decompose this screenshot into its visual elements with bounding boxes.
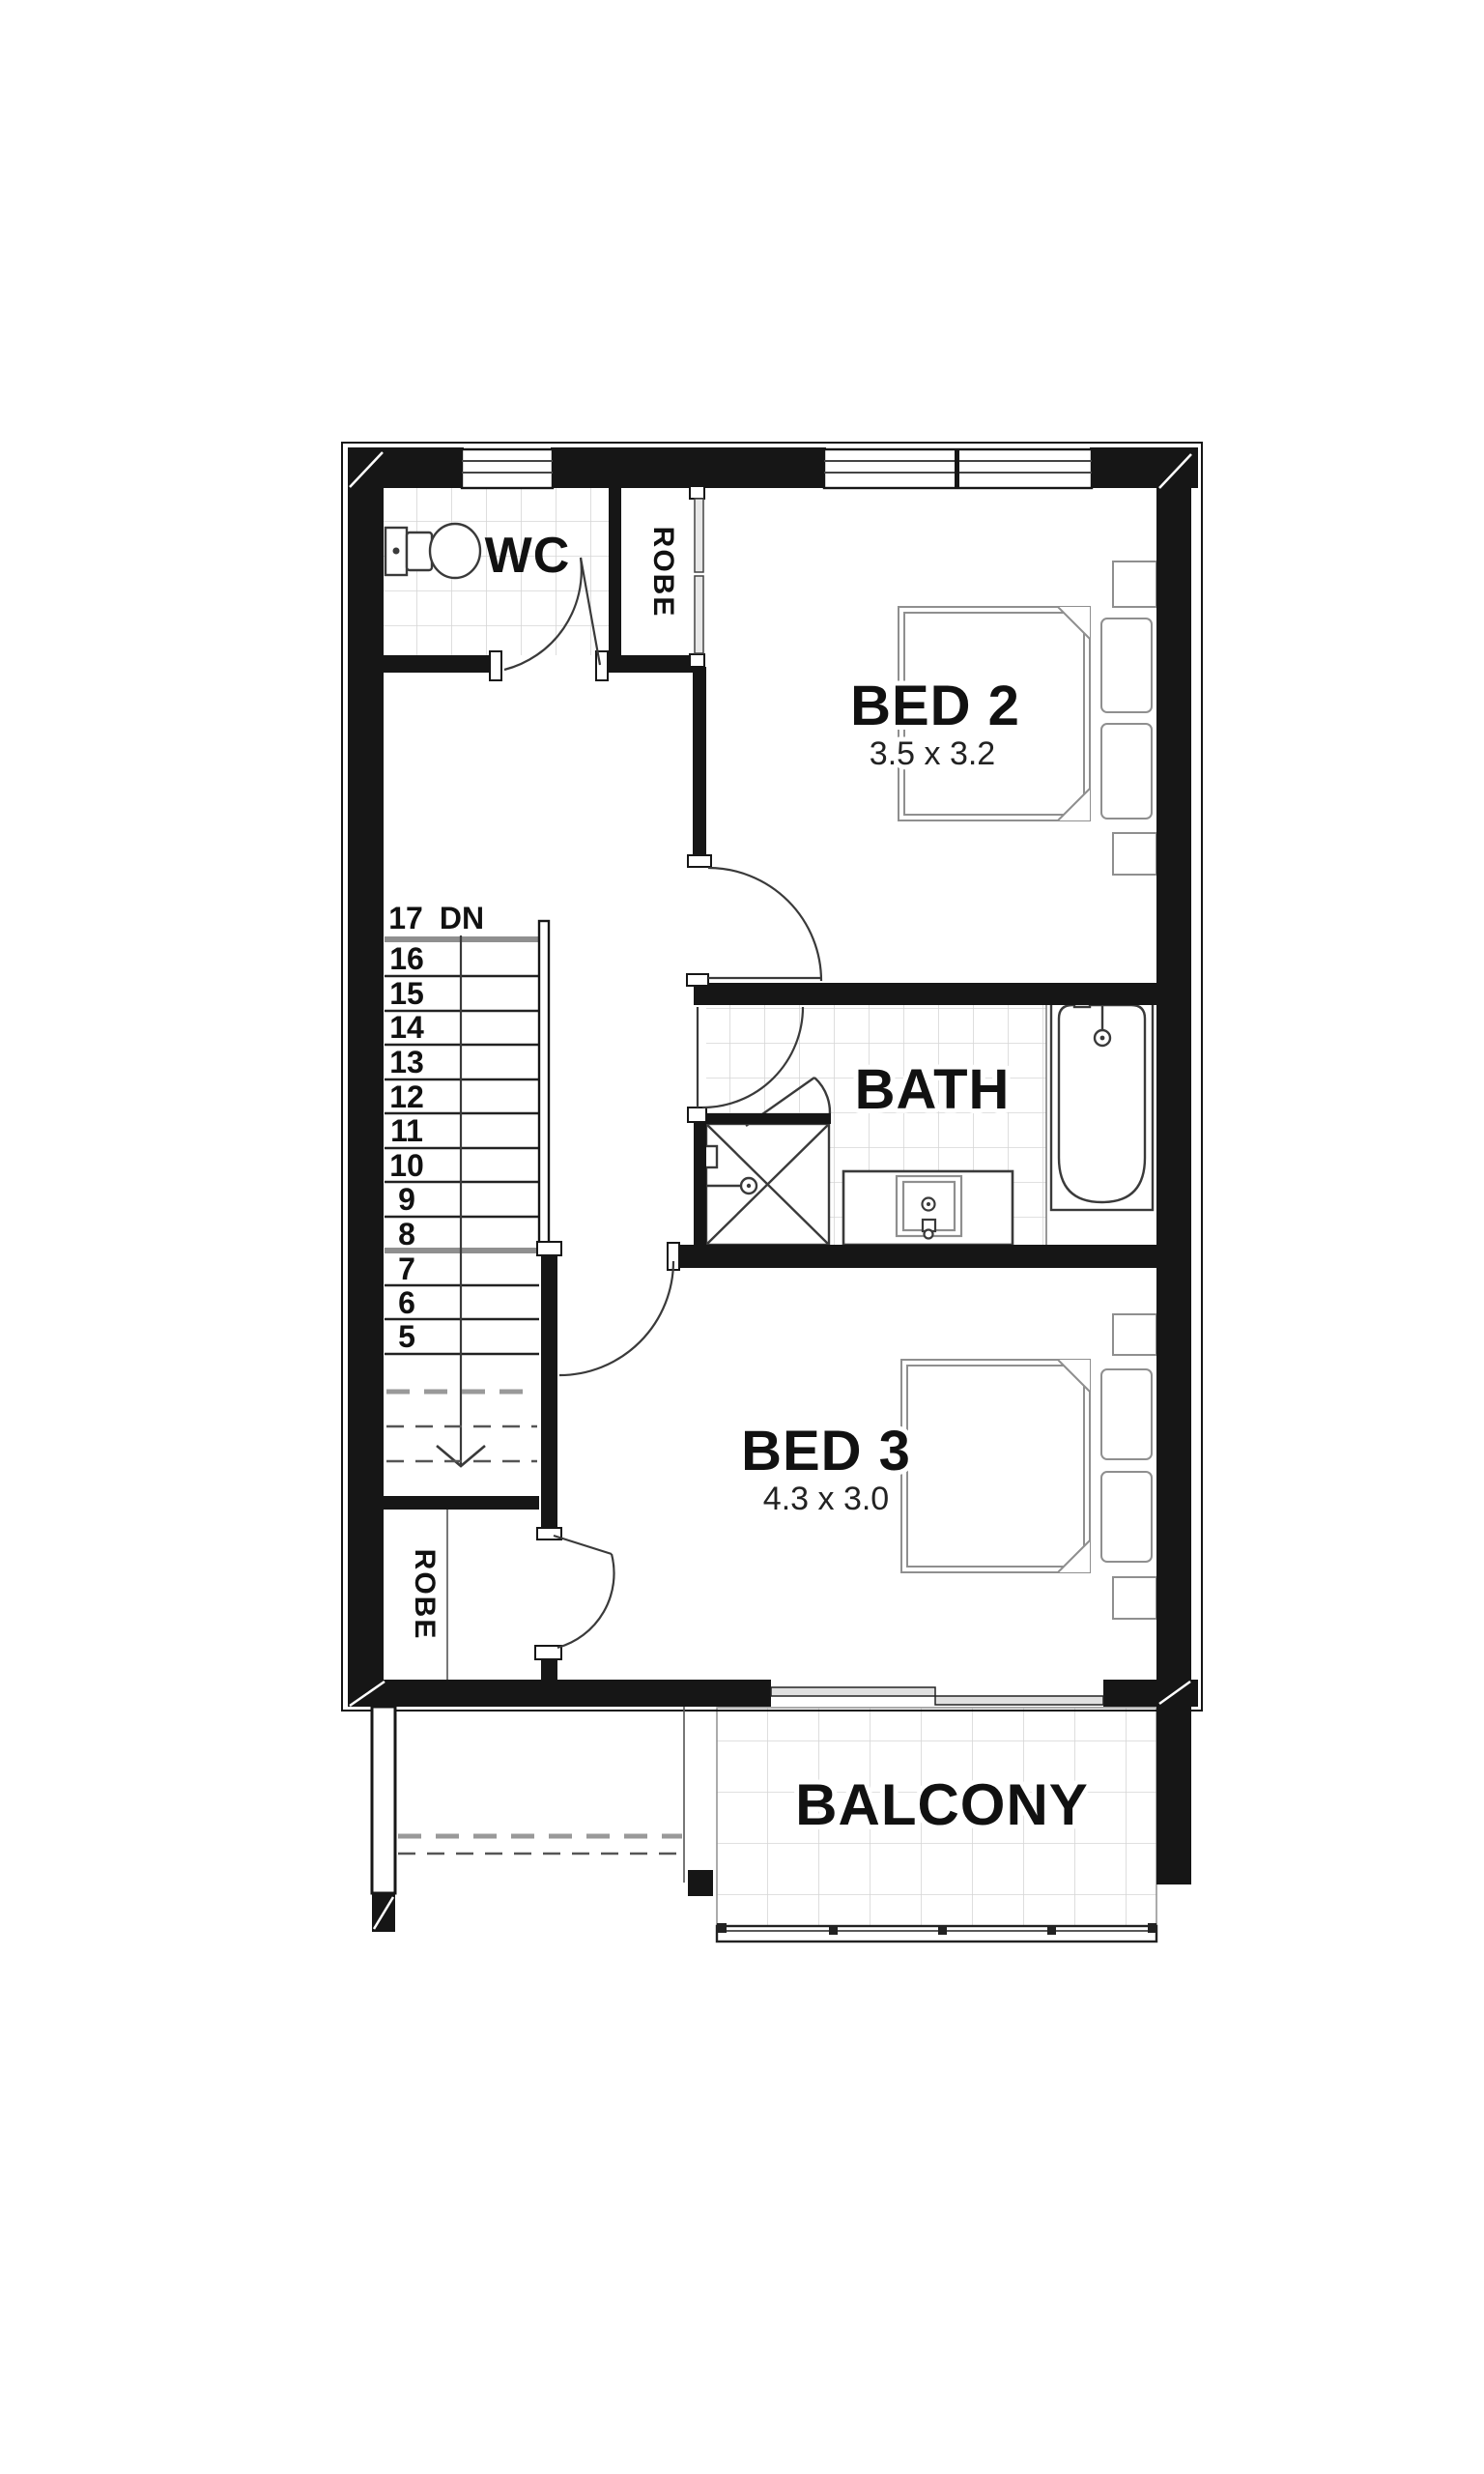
stair-tread-10: 10: [389, 1148, 424, 1183]
balcony-left-wall: [372, 1707, 395, 1893]
bed2-dims: 3.5 x 3.2: [870, 735, 995, 772]
robe-top-slider-panel-2: [695, 576, 703, 653]
wall-left: [348, 447, 384, 1704]
bed2-nightstand-top: [1113, 561, 1156, 607]
stair-tread-8: 8: [398, 1217, 415, 1251]
bed2-window: [824, 449, 1092, 488]
robe-door-arc: [557, 1554, 614, 1648]
bed3-pillow-bottom: [1101, 1472, 1152, 1562]
floor-plan-page: WC ROBE BED 2 3.5 x 3.2 BATH BED 3 4.3 x…: [0, 0, 1484, 2474]
robe-door-leaf: [554, 1536, 612, 1554]
stair-tread-14: 14: [389, 1010, 424, 1045]
bed3-pillow-top: [1101, 1369, 1152, 1459]
bed2-label: BED 2: [850, 675, 1020, 737]
wall-bed2-west: [693, 667, 706, 867]
wall-wc-robe-divider: [609, 488, 621, 657]
wall-bath-bottom: [673, 1245, 1159, 1268]
bed2-door-arc: [708, 868, 821, 981]
wall-wc-bottom-right: [602, 655, 693, 673]
stair-tread-6: 6: [398, 1285, 415, 1320]
stair-tread-5: 5: [398, 1319, 415, 1354]
wc-label: WC: [485, 528, 571, 584]
stair-tread-16: 16: [389, 941, 424, 976]
stair-tread-7: 7: [398, 1251, 415, 1286]
wc-window: [462, 449, 553, 488]
bed3-nightstand-top: [1113, 1314, 1156, 1355]
balcony-railing: [717, 1923, 1156, 1942]
balcony-post: [688, 1870, 713, 1896]
stair-top-number: 17: [388, 901, 423, 935]
bed3-door-arc: [559, 1261, 673, 1375]
stair-direction-label: DN: [440, 901, 484, 935]
stair-handrail: [539, 921, 549, 1244]
bed2-pillow-top: [1101, 618, 1152, 712]
stair-tread-11: 11: [390, 1113, 423, 1148]
wall-bottom-1: [348, 1680, 771, 1707]
bed3-nightstand-bottom: [1113, 1577, 1156, 1619]
wall-bottom-2: [1103, 1680, 1198, 1707]
wall-right: [1156, 447, 1191, 1884]
floor-plan-drawing: WC ROBE BED 2 3.5 x 3.2 BATH BED 3 4.3 x…: [0, 0, 1484, 2474]
balcony-slider-panel-2: [935, 1696, 1103, 1705]
wall-bed3-west: [541, 1244, 557, 1539]
wall-top-2: [551, 447, 826, 488]
vanity-sink-icon: [843, 1171, 1013, 1245]
robe-top-label: ROBE: [647, 527, 679, 618]
bed3-furniture: [901, 1314, 1156, 1619]
wall-corridor-bath: [694, 983, 1159, 1005]
stair-tread-13: 13: [389, 1045, 424, 1079]
wall-landing-bottom: [384, 1496, 539, 1510]
balcony-label: BALCONY: [795, 1772, 1089, 1837]
bed2-pillow-bottom: [1101, 724, 1152, 819]
stair-tread-9: 9: [398, 1182, 415, 1217]
bed2-nightstand-bottom: [1113, 833, 1156, 875]
wall-shower-top: [694, 1113, 831, 1124]
bed3-dims: 4.3 x 3.0: [763, 1481, 889, 1517]
wall-wc-bottom-left: [384, 655, 498, 673]
bed3-label: BED 3: [741, 1420, 911, 1482]
balcony-slider-panel-1: [771, 1687, 935, 1696]
wall-bath-west: [694, 1113, 706, 1251]
stair-tread-12: 12: [389, 1079, 424, 1114]
bathtub-icon: [1051, 994, 1153, 1210]
robe-bottom-label: ROBE: [409, 1549, 441, 1641]
bath-label: BATH: [855, 1058, 1011, 1121]
robe-top-slider-panel-1: [695, 499, 703, 572]
stair-tread-15: 15: [389, 976, 424, 1011]
